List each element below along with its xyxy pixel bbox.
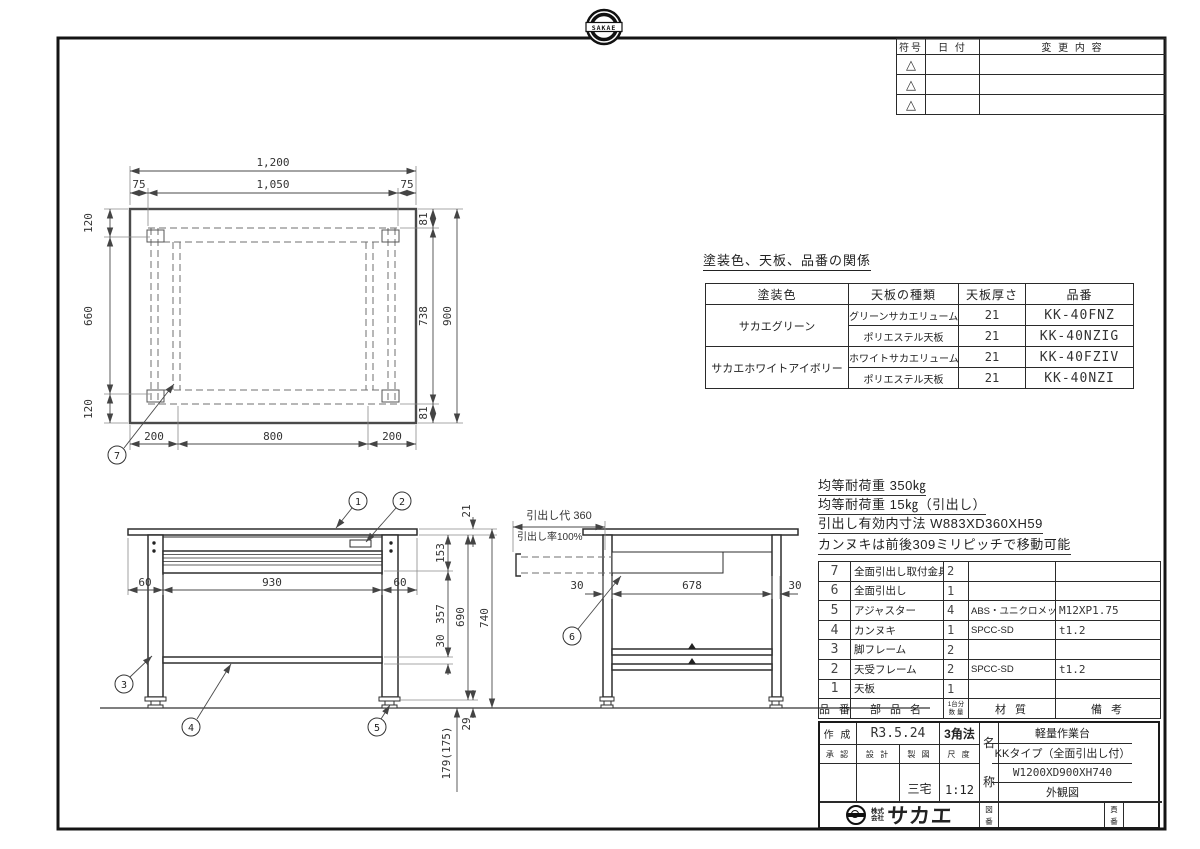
part-remarks: t1.2 [1056, 659, 1161, 679]
finish-thickness: 21 [959, 326, 1026, 347]
sakae-emblem-icon [846, 805, 866, 825]
part-remarks: t1.2 [1056, 620, 1161, 640]
approve-cell [820, 764, 857, 802]
part-qty: 1 [944, 620, 969, 640]
part-material [969, 581, 1056, 601]
parts-list-table: 7 全面引出し取付金具 2 6 全面引出し 1 5 アジャスター 4 ABS・ユ… [818, 561, 1161, 719]
page-no-label: 頁 番 [1105, 802, 1124, 827]
part-remarks [1056, 640, 1161, 660]
finish-thickness: 21 [959, 305, 1026, 326]
parts-col-material: 材 質 [969, 699, 1056, 719]
part-name: 全面引出し [851, 581, 944, 601]
parts-row: 4 カンヌキ 1 SPCC-SD t1.2 [819, 620, 1161, 640]
part-remarks: M12XP1.75 [1056, 601, 1161, 621]
plan-dim-left-mid: 660 [82, 306, 95, 326]
revision-triangle-icon: △ [906, 57, 916, 72]
finish-col-part: 品番 [1026, 284, 1134, 305]
parts-row: 6 全面引出し 1 [819, 581, 1161, 601]
part-no: 4 [819, 620, 851, 640]
company-prefix-1: 株式 [871, 808, 884, 815]
company-name: サカエ [886, 800, 954, 830]
finish-col-color: 塗装色 [706, 284, 849, 305]
side-view: 引出し代 360 引出し率100% 30 678 30 6 [513, 508, 802, 708]
note-drawer-capacity: 均等耐荷重 15㎏（引出し） [818, 494, 986, 515]
part-name: カンヌキ [851, 620, 944, 640]
stamp-text: SAKAE [592, 24, 617, 32]
parts-row: 3 脚フレーム 2 [819, 640, 1161, 660]
plan-dim-bottom-mid: 800 [263, 430, 283, 443]
part-no: 2 [819, 659, 851, 679]
front-body [128, 529, 417, 708]
front-dim-foot: 29 [460, 717, 473, 730]
front-dim-rail: 30 [434, 634, 447, 647]
front-dim-right-offset: 60 [393, 576, 406, 589]
drawing-no-label: 図 番 [980, 802, 999, 827]
finish-col-type: 天板の種類 [849, 284, 959, 305]
revision-triangle-icon: △ [906, 97, 916, 112]
part-remarks [1056, 581, 1161, 601]
plan-dim-bottom-right: 200 [382, 430, 402, 443]
parts-col-qty-line1: 1台分 [948, 701, 965, 708]
title-block: 作 成 R3.5.24 3角法 承 認 設 計 製 図 尺 度 三宅 1:12 … [818, 721, 1160, 829]
revision-col-symbol: 符号 [897, 39, 926, 55]
finish-col-thickness: 天板厚さ [959, 284, 1026, 305]
part-qty: 1 [944, 581, 969, 601]
plan-dim-inner-width: 1,050 [256, 178, 289, 191]
parts-col-no: 品 番 [819, 699, 851, 719]
part-material [969, 562, 1056, 582]
front-dim-span: 930 [262, 576, 282, 589]
parts-col-qty-line2: 数 量 [949, 709, 964, 716]
draft-label: 製 図 [900, 745, 940, 764]
revision-row: △ [897, 55, 1166, 75]
product-name: 軽量作業台 [983, 723, 1142, 743]
side-body [583, 529, 798, 708]
note-crossbar-pitch: カンヌキは前後309ミリピッチで移動可能 [818, 534, 1071, 555]
parts-col-name: 部 品 名 [851, 699, 944, 719]
part-remarks [1056, 679, 1161, 699]
drawing-kind: 外観図 [983, 782, 1142, 802]
finish-part-no: KK-40FZIV [1026, 347, 1134, 368]
front-dim-total-height: 740 [478, 608, 491, 628]
revision-row: △ [897, 95, 1166, 115]
plan-dim-right-margin: 75 [400, 178, 413, 191]
front-dim-leg-height: 690 [454, 607, 467, 627]
finish-part-no: KK-40NZIG [1026, 326, 1134, 347]
finish-color-ivory: サカエホワイトアイボリー [706, 347, 849, 389]
plan-dim-left-margin: 75 [132, 178, 145, 191]
parts-row: 5 アジャスター 4 ABS・ユニクロメッキ M12XP1.75 [819, 601, 1161, 621]
front-dim-under: 179(175) [440, 727, 453, 780]
balloon-6-label: 6 [569, 632, 575, 643]
part-no: 7 [819, 562, 851, 582]
plan-dim-right-mid: 738 [417, 306, 430, 326]
balloon-3-label: 3 [121, 680, 127, 691]
page-no-char-1: 頁 [1110, 804, 1118, 815]
part-no: 6 [819, 581, 851, 601]
drawer-handle [350, 540, 371, 547]
part-qty: 2 [944, 659, 969, 679]
plan-dimension-lines [110, 171, 457, 444]
drawing-sheet: SAKAE [0, 0, 1200, 849]
drawing-no-char-1: 図 [985, 804, 993, 815]
plan-leg-caps [147, 230, 399, 402]
plan-dim-right-top: 81 [417, 212, 430, 225]
finish-thickness: 21 [959, 368, 1026, 389]
drafter-name: 三宅 [900, 764, 940, 802]
scale-label: 尺 度 [940, 745, 980, 764]
balloon-2-label: 2 [399, 497, 405, 508]
finish-top-type: ホワイトサカエリューム天板 [849, 347, 959, 368]
part-no: 3 [819, 640, 851, 660]
scale-value: 1:12 [940, 764, 980, 802]
side-dim-span: 678 [682, 579, 702, 592]
finish-top-type: ポリエステル天板 [849, 326, 959, 347]
part-material: SPCC-SD [969, 620, 1056, 640]
side-dim-front-offset: 30 [570, 579, 583, 592]
side-drawer-extended [516, 554, 612, 576]
front-dim-top-thickness: 21 [460, 504, 473, 517]
side-pull-rate-label: 引出し率100% [517, 530, 583, 543]
part-material: ABS・ユニクロメッキ [969, 601, 1056, 621]
plan-dim-left-bot: 120 [82, 399, 95, 419]
projection-method: 3角法 [940, 723, 980, 745]
finish-color-green: サカエグリーン [706, 305, 849, 347]
parts-row: 7 全面引出し取付金具 2 [819, 562, 1161, 582]
company-logo: 株式 会社 サカエ [820, 802, 980, 827]
front-dim-left-offset: 60 [138, 576, 151, 589]
part-name: 全面引出し取付金具 [851, 562, 944, 582]
part-no: 5 [819, 601, 851, 621]
front-dim-mid-zone: 357 [434, 604, 447, 624]
drawing-no-cell [999, 802, 1105, 827]
created-label: 作 成 [820, 723, 857, 745]
part-no: 1 [819, 679, 851, 699]
part-remarks [1056, 562, 1161, 582]
part-name: 天板 [851, 679, 944, 699]
revision-table: 符号 日 付 変 更 内 容 △ △ △ [896, 38, 1166, 115]
part-qty: 1 [944, 679, 969, 699]
part-qty: 4 [944, 601, 969, 621]
part-name: 天受フレーム [851, 659, 944, 679]
part-material [969, 640, 1056, 660]
sakae-stamp-icon: SAKAE [586, 10, 622, 44]
design-cell [857, 764, 900, 802]
note-load-capacity: 均等耐荷重 350㎏ [818, 475, 926, 496]
plan-dim-total-depth: 900 [441, 306, 454, 326]
part-qty: 2 [944, 640, 969, 660]
part-name: 脚フレーム [851, 640, 944, 660]
design-label: 設 計 [857, 745, 900, 764]
finish-table: 塗装色 天板の種類 天板厚さ 品番 サカエグリーン グリーンサカエリューム天板 … [705, 283, 1134, 389]
plan-dim-right-bot: 81 [417, 406, 430, 419]
finish-thickness: 21 [959, 347, 1026, 368]
balloon-1-label: 1 [355, 497, 361, 508]
note-drawer-inner-size: 引出し有効内寸法 W883XD360XH59 [818, 513, 1043, 534]
revision-col-date: 日 付 [926, 39, 980, 55]
finish-part-no: KK-40NZI [1026, 368, 1134, 389]
balloon-4-label: 4 [188, 723, 194, 734]
parts-col-remarks: 備 考 [1056, 699, 1161, 719]
parts-col-qty: 1台分 数 量 [944, 699, 969, 719]
front-dim-drawer-zone: 153 [434, 543, 447, 563]
plan-dim-left-top: 120 [82, 213, 95, 233]
name-separator [992, 763, 1132, 764]
plan-dim-total-width: 1,200 [256, 156, 289, 169]
page-no-char-2: 番 [1110, 816, 1118, 827]
finish-row: サカエグリーン グリーンサカエリューム天板 21 KK-40FNZ [706, 305, 1134, 326]
product-size: W1200XD900XH740 [983, 763, 1142, 783]
plan-hidden-lines [148, 228, 398, 404]
created-date: R3.5.24 [857, 723, 940, 745]
part-name: アジャスター [851, 601, 944, 621]
parts-header-row: 品 番 部 品 名 1台分 数 量 材 質 備 考 [819, 699, 1161, 719]
revision-row: △ [897, 75, 1166, 95]
finish-top-type: グリーンサカエリューム天板 [849, 305, 959, 326]
side-dim-rear-offset: 30 [788, 579, 801, 592]
plan-dim-bottom-left: 200 [144, 430, 164, 443]
name-separator [992, 743, 1132, 744]
balloon-7-label: 7 [114, 451, 120, 462]
parts-row: 1 天板 1 [819, 679, 1161, 699]
page-no-cell [1124, 802, 1162, 827]
name-separator [992, 782, 1132, 783]
company-prefix-2: 会社 [871, 815, 884, 822]
revision-col-change: 変 更 内 容 [980, 39, 1166, 55]
finish-row: サカエホワイトアイボリー ホワイトサカエリューム天板 21 KK-40FZIV [706, 347, 1134, 368]
finish-part-no: KK-40FNZ [1026, 305, 1134, 326]
plan-view: 1,200 1,050 75 75 120 660 120 81 738 81 … [82, 156, 463, 464]
revision-triangle-icon: △ [906, 77, 916, 92]
front-view: 60 930 60 21 153 357 30 690 740 29 179(1… [100, 492, 930, 792]
finish-top-type: ポリエステル天板 [849, 368, 959, 389]
approve-label: 承 認 [820, 745, 857, 764]
part-material [969, 679, 1056, 699]
part-qty: 2 [944, 562, 969, 582]
finish-table-title: 塗装色、天板、品番の関係 [703, 250, 871, 271]
side-pull-stroke-label: 引出し代 360 [526, 508, 591, 522]
drawing-no-char-2: 番 [985, 816, 993, 827]
parts-row: 2 天受フレーム 2 SPCC-SD t1.2 [819, 659, 1161, 679]
part-material: SPCC-SD [969, 659, 1056, 679]
balloon-5-label: 5 [374, 723, 380, 734]
product-type: KKタイプ（全面引出し付） [983, 743, 1142, 763]
